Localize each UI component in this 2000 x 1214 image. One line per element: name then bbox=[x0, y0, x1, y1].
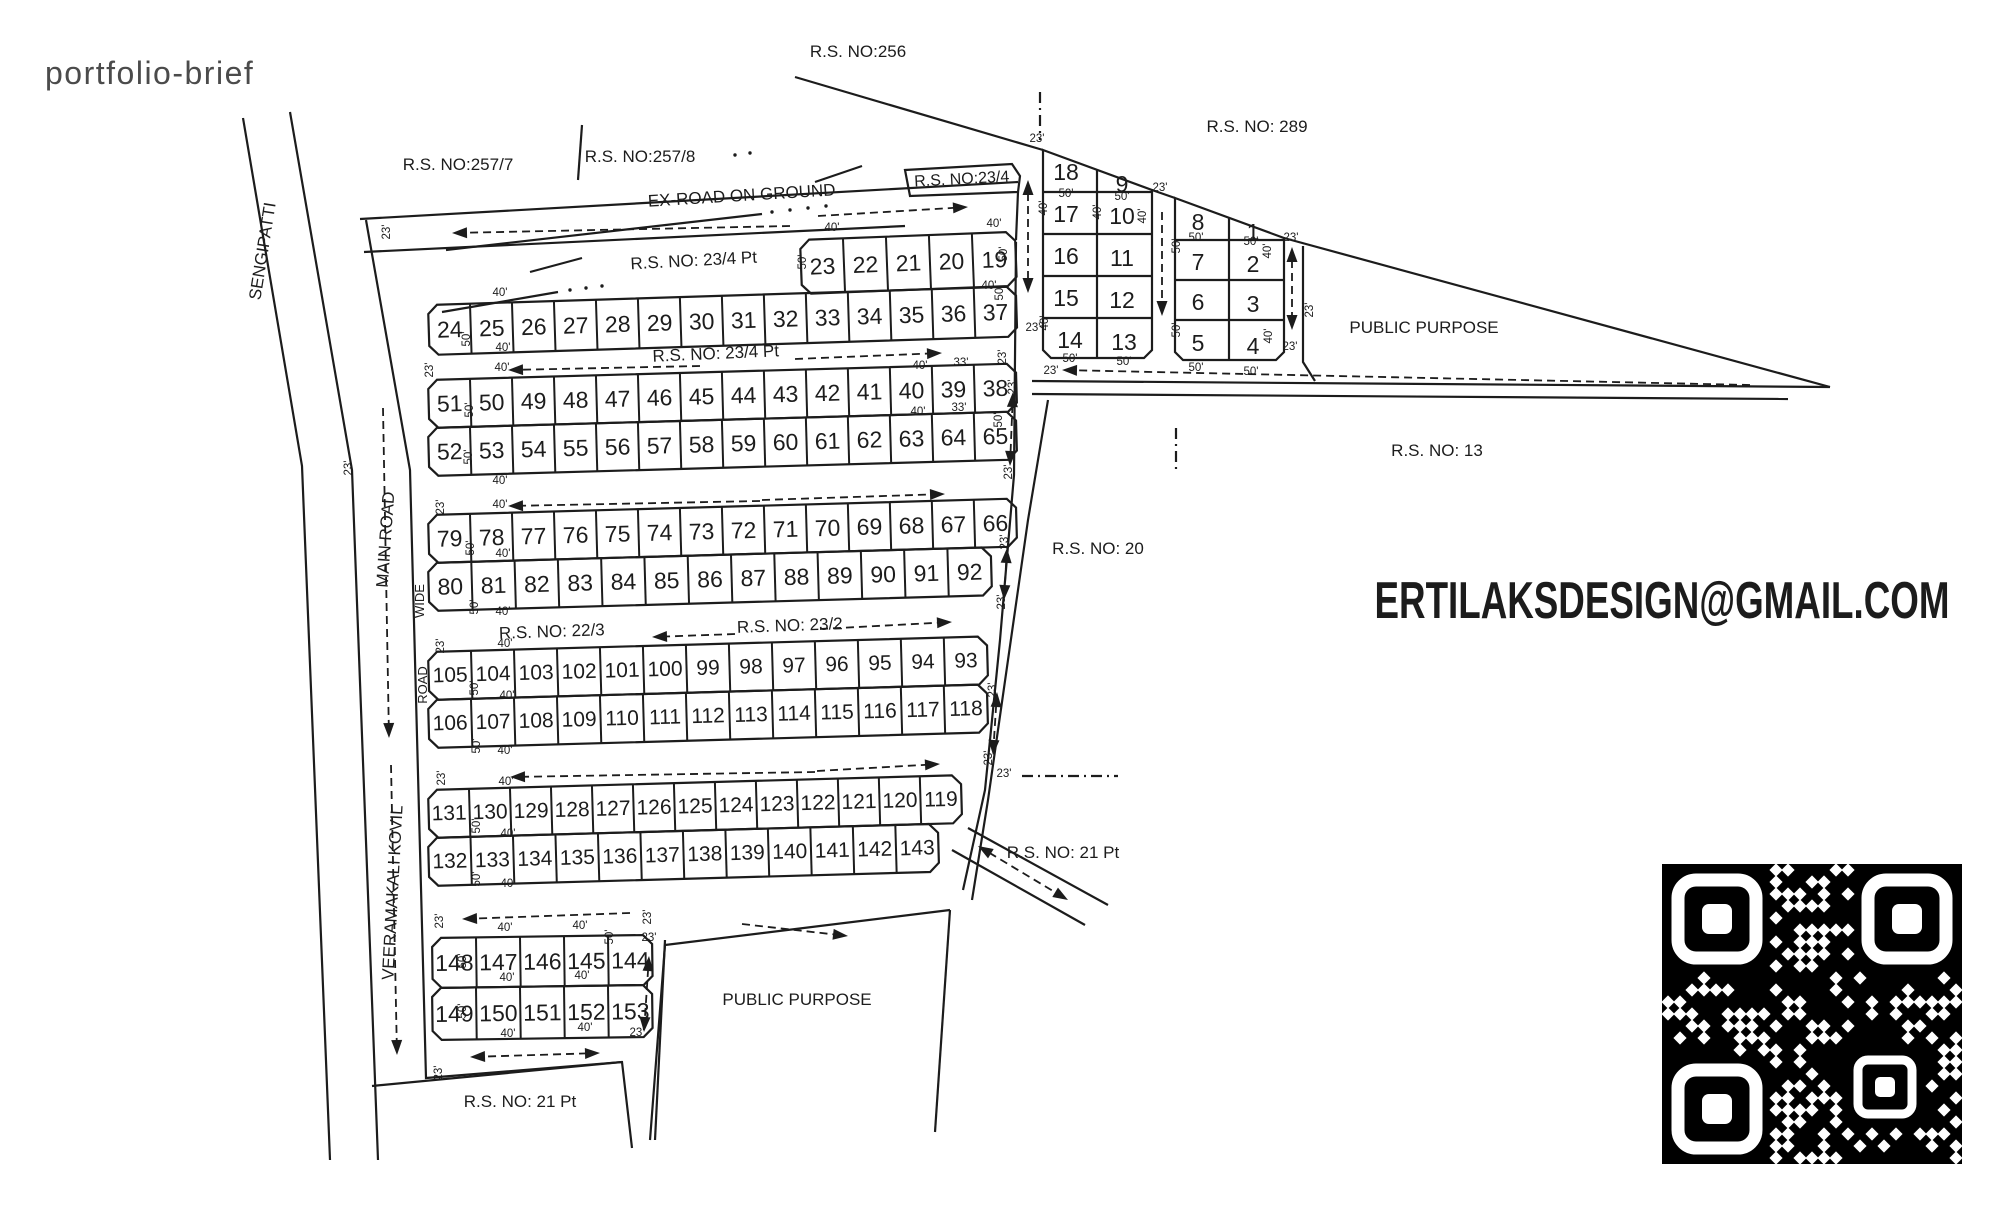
plot-40: 40 bbox=[898, 377, 924, 404]
dim-label: 23' bbox=[642, 910, 654, 925]
road-arrow bbox=[1011, 405, 1013, 453]
plot-50: 50 bbox=[478, 389, 504, 416]
plot-66: 66 bbox=[982, 510, 1008, 537]
road-arrow bbox=[521, 501, 760, 506]
rs-no-20: R.S. NO: 20 bbox=[1052, 539, 1144, 558]
trace-dot bbox=[788, 208, 791, 211]
plot-31: 31 bbox=[730, 307, 756, 334]
arrowhead bbox=[652, 631, 667, 642]
dim-label: 50' bbox=[998, 247, 1010, 262]
plot-135: 135 bbox=[560, 846, 596, 870]
plot-116: 116 bbox=[863, 699, 897, 723]
road-arrow bbox=[523, 772, 815, 777]
plot-107: 107 bbox=[475, 710, 511, 734]
boundary-line bbox=[968, 828, 1108, 905]
dim-label: 23' bbox=[987, 683, 999, 698]
dim-label: 40' bbox=[1039, 316, 1051, 331]
dim-label: 50' bbox=[1189, 362, 1204, 374]
plot-3: 3 bbox=[1247, 291, 1260, 317]
dim-label: 23' bbox=[1153, 182, 1168, 194]
arrowhead bbox=[452, 227, 467, 238]
dim-label: 23' bbox=[435, 639, 447, 654]
plot-93: 93 bbox=[954, 649, 978, 673]
rs-no-21-pt-right: R.S. NO: 21 Pt bbox=[1007, 843, 1120, 862]
plot-20: 20 bbox=[938, 248, 965, 275]
plot-5: 5 bbox=[1192, 330, 1205, 356]
plot-92: 92 bbox=[957, 559, 983, 586]
plot-127: 127 bbox=[595, 797, 631, 821]
dim-label: 40' bbox=[496, 606, 511, 618]
boundary-line bbox=[1016, 192, 1018, 240]
plot-row-rowC: 5150494847464544434241403938 bbox=[428, 364, 1017, 428]
road-arrow bbox=[475, 913, 630, 919]
plot-4: 4 bbox=[1247, 333, 1260, 359]
dim-label: 50' bbox=[1244, 366, 1259, 378]
rs-no-23-2: R.S. NO: 23/2 bbox=[737, 614, 843, 637]
plot-114: 114 bbox=[777, 702, 811, 726]
plot-117: 117 bbox=[906, 698, 940, 722]
plot-125: 125 bbox=[677, 795, 713, 819]
arrowhead bbox=[937, 617, 952, 628]
dim-label: 40' bbox=[1092, 205, 1104, 220]
survey-drawing: 2322212019242526272829303132333435363751… bbox=[0, 0, 2000, 1214]
plot-63: 63 bbox=[898, 425, 924, 452]
dim-label: 50' bbox=[1059, 188, 1074, 200]
dim-label: 23' bbox=[999, 535, 1011, 550]
plot-54: 54 bbox=[520, 436, 547, 463]
plot-75: 75 bbox=[604, 520, 630, 547]
plot-layout-page: portfolio-brief 232221201924252627282930… bbox=[0, 0, 2000, 1214]
public-purpose-bottom: PUBLIC PURPOSE bbox=[722, 990, 871, 1009]
plot-96: 96 bbox=[825, 653, 849, 677]
plot-76: 76 bbox=[562, 522, 588, 549]
plot-43: 43 bbox=[772, 381, 798, 408]
plot-47: 47 bbox=[604, 385, 630, 412]
arrowhead bbox=[383, 723, 394, 738]
plot-35: 35 bbox=[898, 301, 924, 328]
plot-14: 14 bbox=[1057, 327, 1083, 353]
plot-6: 6 bbox=[1192, 289, 1205, 315]
arrowhead bbox=[1157, 301, 1168, 316]
plot-142: 142 bbox=[857, 838, 893, 862]
plot-28: 28 bbox=[604, 311, 630, 338]
plot-94: 94 bbox=[911, 650, 935, 674]
plot-129: 129 bbox=[513, 799, 549, 823]
rs-no-13: R.S. NO: 13 bbox=[1391, 441, 1483, 460]
plot-108: 108 bbox=[518, 709, 554, 733]
dim-label: 40' bbox=[1137, 209, 1149, 224]
plot-106: 106 bbox=[432, 711, 468, 735]
plot-139: 139 bbox=[729, 841, 765, 865]
plot-map: 2322212019242526272829303132333435363751… bbox=[0, 0, 2000, 1214]
dim-label: 40' bbox=[913, 360, 928, 372]
plot-115: 115 bbox=[820, 701, 854, 725]
dim-label: 40' bbox=[498, 922, 513, 934]
dim-label: 23' bbox=[630, 1027, 645, 1039]
dim-label: 40' bbox=[493, 499, 508, 511]
road-arrow bbox=[818, 208, 955, 216]
plot-72: 72 bbox=[730, 517, 756, 544]
plot-101: 101 bbox=[604, 659, 640, 683]
plot-131: 131 bbox=[431, 801, 467, 825]
plot-98: 98 bbox=[739, 655, 763, 679]
arrowhead bbox=[953, 202, 968, 213]
dim-label: 50' bbox=[1117, 356, 1132, 368]
rs-no-256: R.S. NO:256 bbox=[810, 42, 906, 61]
road-arrow bbox=[483, 1053, 587, 1056]
plot-27: 27 bbox=[563, 312, 589, 339]
plot-36: 36 bbox=[940, 300, 966, 327]
boundary-line bbox=[290, 112, 378, 1160]
plot-69: 69 bbox=[856, 513, 882, 540]
plot-136: 136 bbox=[602, 845, 638, 869]
plot-10: 10 bbox=[1109, 203, 1135, 229]
boundary-line bbox=[446, 214, 762, 250]
plot-95: 95 bbox=[868, 652, 892, 676]
arrowhead bbox=[1052, 888, 1068, 900]
plot-90: 90 bbox=[870, 561, 896, 588]
plot-119: 119 bbox=[924, 788, 958, 812]
arrowhead bbox=[925, 759, 940, 770]
dim-label: 50' bbox=[1115, 191, 1130, 203]
plot-34: 34 bbox=[856, 303, 883, 330]
plot-141: 141 bbox=[814, 839, 850, 863]
plot-113: 113 bbox=[734, 703, 768, 727]
dim-label: 40' bbox=[573, 920, 588, 932]
dim-label: 23' bbox=[996, 595, 1008, 610]
plot-2: 2 bbox=[1247, 251, 1260, 277]
plot-123: 123 bbox=[759, 792, 795, 816]
dim-label: 50' bbox=[1063, 353, 1078, 365]
plot-29: 29 bbox=[646, 309, 672, 336]
main-road: MAIN ROAD bbox=[373, 491, 399, 588]
ex-road-on-ground: EX-ROAD ON GROUND bbox=[647, 180, 836, 210]
dim-label: 23' bbox=[424, 363, 436, 378]
dim-label: 40' bbox=[1038, 201, 1050, 216]
plot-120: 120 bbox=[882, 789, 918, 813]
dim-label: 40' bbox=[496, 548, 511, 560]
plot-100: 100 bbox=[647, 657, 683, 681]
arrowhead bbox=[585, 1048, 600, 1059]
dim-label: 23' bbox=[997, 350, 1009, 365]
dim-label: 50' bbox=[469, 600, 481, 615]
plot-97: 97 bbox=[782, 654, 806, 678]
rs-no-21-pt-bottom: R.S. NO: 21 Pt bbox=[464, 1092, 577, 1111]
dim-label: 50' bbox=[463, 450, 475, 465]
dim-label: 23' bbox=[642, 932, 657, 944]
plot-37: 37 bbox=[982, 299, 1008, 326]
plot-80: 80 bbox=[437, 573, 463, 600]
dim-label: 40' bbox=[987, 218, 1002, 230]
trace-dot bbox=[770, 210, 773, 213]
trace-dot bbox=[733, 153, 736, 156]
plot-53: 53 bbox=[478, 437, 504, 464]
plot-38: 38 bbox=[982, 375, 1008, 402]
boundary-line bbox=[1032, 394, 1788, 399]
plot-16: 16 bbox=[1053, 243, 1079, 269]
plot-32: 32 bbox=[772, 305, 798, 332]
plot-109: 109 bbox=[561, 708, 597, 732]
dim-label: 23' bbox=[436, 771, 448, 786]
plot-51: 51 bbox=[437, 390, 463, 417]
plot-60: 60 bbox=[772, 429, 798, 456]
dim-label: 23' bbox=[983, 751, 995, 766]
public-purpose-right: PUBLIC PURPOSE bbox=[1349, 318, 1498, 337]
plot-41: 41 bbox=[856, 378, 882, 405]
plot-17: 17 bbox=[1053, 201, 1079, 227]
plot-30: 30 bbox=[688, 308, 714, 335]
rs-no-23-4: R.S. NO:23/4 bbox=[914, 169, 1010, 191]
arrowhead bbox=[1287, 247, 1298, 262]
dim-label: 50' bbox=[1189, 232, 1204, 244]
dim-label: 40' bbox=[825, 222, 840, 234]
plot-56: 56 bbox=[604, 433, 630, 460]
plot-24: 24 bbox=[437, 316, 464, 343]
plot-102: 102 bbox=[561, 660, 597, 684]
trace-dot bbox=[568, 288, 571, 291]
plot-126: 126 bbox=[636, 796, 672, 820]
plot-33: 33 bbox=[814, 304, 840, 331]
plot-88: 88 bbox=[783, 563, 809, 590]
plot-137: 137 bbox=[644, 843, 680, 867]
dim-label: 23' bbox=[1284, 232, 1299, 244]
trace-dot bbox=[824, 204, 827, 207]
plot-150: 150 bbox=[479, 1000, 518, 1027]
dim-label: 40' bbox=[498, 638, 513, 650]
plot-12: 12 bbox=[1109, 287, 1135, 313]
plot-52: 52 bbox=[437, 438, 463, 465]
rs-no-257-7: R.S. NO:257/7 bbox=[403, 155, 514, 174]
plot-68: 68 bbox=[898, 512, 924, 539]
plot-128: 128 bbox=[554, 798, 590, 822]
plot-18: 18 bbox=[1053, 159, 1079, 185]
boundary-line bbox=[372, 1062, 622, 1086]
plot-70: 70 bbox=[814, 514, 840, 541]
arrowhead bbox=[1062, 365, 1077, 376]
road-arrow bbox=[795, 354, 929, 359]
dim-label: 50' bbox=[471, 739, 483, 754]
dim-label: 50' bbox=[471, 819, 483, 834]
plot-79: 79 bbox=[437, 525, 463, 552]
boundary-line bbox=[795, 77, 1043, 150]
plot-143: 143 bbox=[899, 836, 935, 860]
plot-81: 81 bbox=[480, 572, 506, 599]
dim-label: 50' bbox=[457, 1004, 469, 1019]
dim-label: 50' bbox=[464, 403, 476, 418]
plot-7: 7 bbox=[1192, 249, 1205, 275]
dim-label: 40' bbox=[495, 362, 510, 374]
plot-89: 89 bbox=[827, 562, 853, 589]
plot-67: 67 bbox=[940, 511, 966, 538]
boundary-line bbox=[935, 910, 950, 1132]
dim-label: 23' bbox=[1030, 133, 1045, 145]
plot-87: 87 bbox=[740, 565, 766, 592]
arrowhead bbox=[930, 489, 945, 500]
plot-13: 13 bbox=[1111, 329, 1137, 355]
dim-label: 40' bbox=[493, 287, 508, 299]
dim-label: 40' bbox=[501, 828, 516, 840]
rs-no-23-4-pt-2: R.S. NO: 23/4 Pt bbox=[652, 341, 780, 366]
plot-132: 132 bbox=[432, 849, 468, 873]
plot-25: 25 bbox=[479, 315, 505, 342]
boundary-line bbox=[530, 258, 582, 272]
rs-no-23-4-pt-1: R.S. NO: 23/4 Pt bbox=[630, 248, 758, 274]
plot-124: 124 bbox=[718, 793, 754, 817]
plot-103: 103 bbox=[518, 661, 554, 685]
plot-48: 48 bbox=[562, 387, 588, 414]
dim-label: 23' bbox=[1304, 303, 1316, 318]
dim-label: 50' bbox=[604, 930, 616, 945]
arrowhead bbox=[1023, 180, 1034, 195]
dim-label: 40' bbox=[496, 342, 511, 354]
plot-58: 58 bbox=[688, 431, 714, 458]
dim-label: 23' bbox=[1044, 365, 1059, 377]
arrowhead bbox=[1023, 278, 1034, 293]
plot-57: 57 bbox=[646, 432, 672, 459]
dim-label: 40' bbox=[911, 406, 926, 418]
plot-59: 59 bbox=[730, 430, 756, 457]
qr-code bbox=[1661, 863, 1962, 1164]
dim-label: 40' bbox=[498, 745, 513, 757]
dim-label: 50' bbox=[994, 286, 1006, 301]
plot-71: 71 bbox=[772, 516, 798, 543]
plot-151: 151 bbox=[523, 999, 562, 1026]
plot-73: 73 bbox=[688, 518, 714, 545]
dim-label: 50' bbox=[457, 954, 469, 969]
plot-74: 74 bbox=[646, 519, 673, 546]
road-arrow bbox=[762, 494, 932, 500]
dim-label: 23' bbox=[434, 914, 446, 929]
rs-no-22-3: R.S. NO: 22/3 bbox=[499, 620, 605, 643]
watermark-email: ERTILAKSDESIGN@GMAIL.COM bbox=[1375, 572, 1950, 630]
dim-label: 40' bbox=[1262, 244, 1274, 259]
dim-label: 23' bbox=[435, 500, 447, 515]
arrowhead bbox=[832, 929, 848, 940]
plot-49: 49 bbox=[520, 388, 546, 415]
dim-label: 40' bbox=[1263, 329, 1275, 344]
dim-label: 50' bbox=[1244, 236, 1259, 248]
plot-39: 39 bbox=[940, 376, 966, 403]
boundary-line bbox=[1284, 238, 1830, 387]
trace-dot bbox=[806, 206, 809, 209]
arrowhead bbox=[508, 364, 523, 375]
rs-no-289: R.S. NO: 289 bbox=[1206, 117, 1307, 136]
dim-label: 23' bbox=[1026, 322, 1041, 334]
plot-15: 15 bbox=[1053, 285, 1079, 311]
plot-121: 121 bbox=[841, 790, 877, 814]
plot-91: 91 bbox=[913, 560, 939, 587]
dim-label: 50' bbox=[465, 541, 477, 556]
plot-83: 83 bbox=[567, 569, 593, 596]
plot-row-rowD: 5253545556575859606162636465 bbox=[428, 412, 1017, 476]
arrowhead bbox=[462, 913, 477, 924]
plot-46: 46 bbox=[646, 384, 672, 411]
dim-label: 23' bbox=[343, 461, 355, 476]
road-arrow bbox=[817, 765, 927, 771]
public-purpose-bottom-area bbox=[650, 910, 950, 1140]
wide-label: WIDE bbox=[412, 584, 427, 618]
plot-64: 64 bbox=[940, 424, 967, 451]
dim-label: 40' bbox=[575, 970, 590, 982]
dim-label: 50' bbox=[1171, 323, 1183, 338]
plot-78: 78 bbox=[478, 524, 504, 551]
plot-134: 134 bbox=[517, 847, 553, 871]
boundary-line bbox=[578, 125, 582, 180]
dim-label: 40' bbox=[501, 1028, 516, 1040]
plot-42: 42 bbox=[814, 379, 840, 406]
plot-110: 110 bbox=[605, 707, 639, 731]
plot-61: 61 bbox=[814, 427, 840, 454]
plot-112: 112 bbox=[691, 704, 725, 728]
plot-140: 140 bbox=[772, 840, 808, 864]
road-arrow bbox=[465, 226, 790, 233]
dim-label: 33' bbox=[952, 402, 967, 414]
plot-44: 44 bbox=[730, 382, 757, 409]
dim-label: 23' bbox=[1007, 380, 1019, 395]
plot-21: 21 bbox=[895, 249, 922, 276]
road-label: ROAD bbox=[415, 666, 430, 704]
plot-138: 138 bbox=[687, 842, 723, 866]
plot-23: 23 bbox=[809, 253, 836, 280]
trace-dot bbox=[584, 286, 587, 289]
plot-111: 111 bbox=[649, 705, 682, 729]
plot-45: 45 bbox=[688, 383, 714, 410]
plot-26: 26 bbox=[521, 313, 547, 340]
sengipatti-road: SENGIPATTI bbox=[245, 201, 279, 301]
plot-85: 85 bbox=[654, 567, 680, 594]
boundary-line bbox=[815, 166, 862, 182]
arrowhead bbox=[508, 500, 523, 511]
veeramakali-kovil-road: VEERAMAKALI KOVIL bbox=[378, 805, 406, 981]
plot-118: 118 bbox=[949, 697, 983, 721]
dim-label: 40' bbox=[493, 475, 508, 487]
dim-label: 23' bbox=[381, 225, 393, 240]
plot-77: 77 bbox=[520, 523, 546, 550]
dim-label: 33' bbox=[954, 357, 969, 369]
arrowhead bbox=[1287, 315, 1298, 330]
plot-22: 22 bbox=[852, 251, 879, 278]
arrowhead bbox=[927, 348, 942, 359]
plot-11: 11 bbox=[1110, 245, 1134, 271]
dim-label: 40' bbox=[501, 878, 516, 890]
road-arrow bbox=[665, 634, 735, 637]
road-arrow bbox=[521, 366, 700, 370]
plot-62: 62 bbox=[856, 426, 882, 453]
dim-label: 40' bbox=[500, 972, 515, 984]
dim-label: 50' bbox=[1171, 239, 1183, 254]
plot-122: 122 bbox=[800, 791, 836, 815]
dim-label: 40' bbox=[500, 690, 515, 702]
dim-label: 23' bbox=[1003, 465, 1015, 480]
plot-99: 99 bbox=[696, 656, 720, 680]
dim-label: 50' bbox=[471, 872, 483, 887]
plot-55: 55 bbox=[562, 435, 588, 462]
dim-label: 23' bbox=[1283, 341, 1298, 353]
trace-dot bbox=[600, 284, 603, 287]
dim-label: 50' bbox=[461, 332, 473, 347]
plot-105: 105 bbox=[432, 663, 468, 687]
dim-label: 40' bbox=[578, 1022, 593, 1034]
arrowhead bbox=[470, 1051, 485, 1062]
dim-label: 50' bbox=[469, 681, 481, 696]
plot-86: 86 bbox=[697, 566, 723, 593]
dim-label: 50' bbox=[993, 413, 1005, 428]
plot-84: 84 bbox=[610, 568, 637, 595]
plot-146: 146 bbox=[523, 948, 562, 975]
rs-no-257-8: R.S. NO:257/8 bbox=[585, 147, 696, 166]
dim-label: 23' bbox=[997, 768, 1012, 780]
dim-label: 23' bbox=[433, 1066, 445, 1081]
